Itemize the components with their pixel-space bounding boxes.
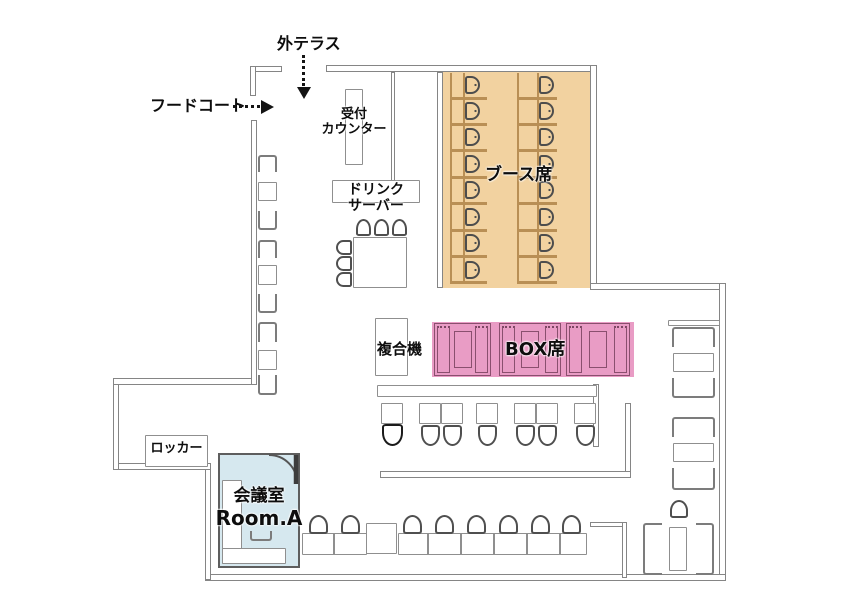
table (258, 182, 277, 201)
counter-divider (460, 534, 462, 554)
chair (516, 425, 535, 446)
booth-partition (517, 229, 557, 232)
chair (672, 417, 715, 437)
chair (672, 327, 715, 347)
booth-seats-label: ブース席 (485, 166, 552, 186)
meeting-room-label: 会議室 Room.A (210, 487, 308, 530)
shelf (668, 320, 720, 326)
box-table (589, 331, 607, 368)
copier-label: 複合機 (377, 341, 422, 358)
box-table (454, 331, 472, 368)
booth-partition (450, 149, 487, 152)
table (381, 403, 403, 424)
wall-booth-left (437, 72, 443, 288)
table (476, 403, 498, 424)
chair (258, 240, 277, 258)
outdoor-terrace-label: 外テラス (277, 35, 341, 53)
wall-bottom (205, 574, 726, 581)
booth-partition (517, 123, 557, 126)
booth-partition (517, 149, 557, 152)
chair (562, 515, 581, 534)
wall-mid-left (113, 378, 257, 385)
box-bench (569, 326, 582, 373)
chair (309, 515, 328, 534)
table (673, 443, 714, 462)
chair (643, 523, 662, 575)
chair (258, 322, 277, 342)
chair (258, 375, 277, 395)
chair (435, 515, 454, 534)
chair (538, 425, 557, 446)
chair (356, 219, 371, 236)
pillar (366, 523, 397, 554)
table (258, 265, 277, 285)
chair (374, 219, 389, 236)
booth-partition (517, 255, 557, 258)
booth-partition (450, 123, 487, 126)
food-court-arrow-icon (233, 105, 260, 108)
chair (443, 425, 462, 446)
table (419, 403, 441, 424)
chair (672, 378, 715, 398)
box-bench (475, 326, 488, 373)
chair (336, 256, 352, 271)
table (258, 350, 277, 370)
wall-step (590, 283, 726, 290)
reception-counter-label: 受付 カウンター (316, 108, 392, 138)
wall-nook-v (625, 403, 631, 478)
chair (672, 468, 715, 490)
booth-partition (450, 176, 487, 179)
chair (499, 515, 518, 534)
table (536, 403, 558, 424)
floor-plan: 外テラス フードコート 受付 カウンター ドリンク サーバー ブース席 BOX席… (0, 0, 845, 600)
table (574, 403, 596, 424)
long-counter (377, 385, 597, 397)
booth-partition (450, 281, 487, 284)
food-court-arrowhead-icon (261, 100, 274, 114)
chair (696, 523, 714, 575)
chair (336, 240, 352, 255)
chair (258, 211, 277, 230)
booth-partition (450, 202, 487, 205)
booth-partition (517, 281, 557, 284)
box-bench (437, 326, 450, 373)
wall-upper-right (590, 65, 597, 287)
chair (336, 272, 352, 287)
chair (421, 425, 440, 446)
counter-divider (333, 534, 335, 554)
chair (531, 515, 550, 534)
chair (258, 155, 277, 172)
chair (258, 294, 277, 313)
counter-divider (493, 534, 495, 554)
box-seats-label: BOX席 (505, 340, 565, 361)
chair (670, 500, 688, 518)
table (353, 237, 407, 288)
chair (478, 425, 497, 446)
table (673, 353, 714, 372)
wall-entry-jamb-v (250, 66, 256, 96)
drink-server-label: ドリンク サーバー (330, 182, 422, 214)
chair (382, 424, 403, 446)
locker-label: ロッカー (145, 442, 208, 457)
table (669, 527, 687, 571)
booth-partition (517, 97, 557, 100)
chair (392, 219, 407, 236)
counter-divider (427, 534, 429, 554)
wall-right (719, 283, 726, 580)
wall-top (326, 65, 597, 72)
wall-nook-h (380, 471, 631, 478)
outdoor-terrace-arrow-icon (302, 55, 305, 86)
wall-left (113, 378, 119, 470)
table (441, 403, 463, 424)
booth-partition (450, 229, 487, 232)
counter-divider (559, 534, 561, 554)
chair (467, 515, 486, 534)
booth-partition (450, 255, 487, 258)
wall-br-v (622, 522, 627, 578)
chair (341, 515, 360, 534)
chair (403, 515, 422, 534)
wall-seat-column (251, 120, 257, 385)
booth-partition (450, 97, 487, 100)
table (514, 403, 536, 424)
outdoor-terrace-arrowhead-icon (297, 87, 311, 99)
box-bench (614, 326, 627, 373)
food-court-label: フードコート (150, 97, 246, 115)
counter-divider (526, 534, 528, 554)
booth-partition (517, 202, 557, 205)
